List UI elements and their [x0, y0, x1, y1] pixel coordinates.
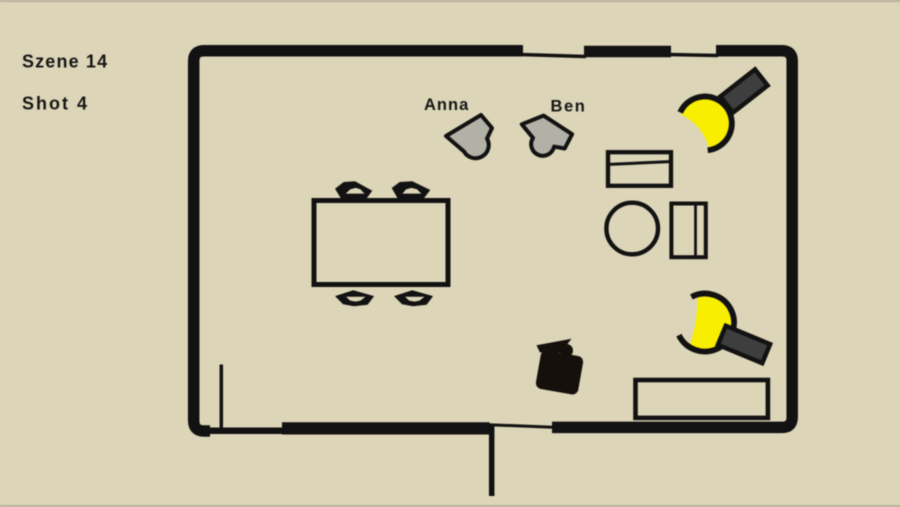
- svg-text:Ben: Ben: [551, 98, 587, 116]
- svg-text:Shot 4: Shot 4: [22, 94, 89, 114]
- svg-text:Szene 14: Szene 14: [22, 52, 108, 72]
- svg-text:Anna: Anna: [424, 96, 469, 114]
